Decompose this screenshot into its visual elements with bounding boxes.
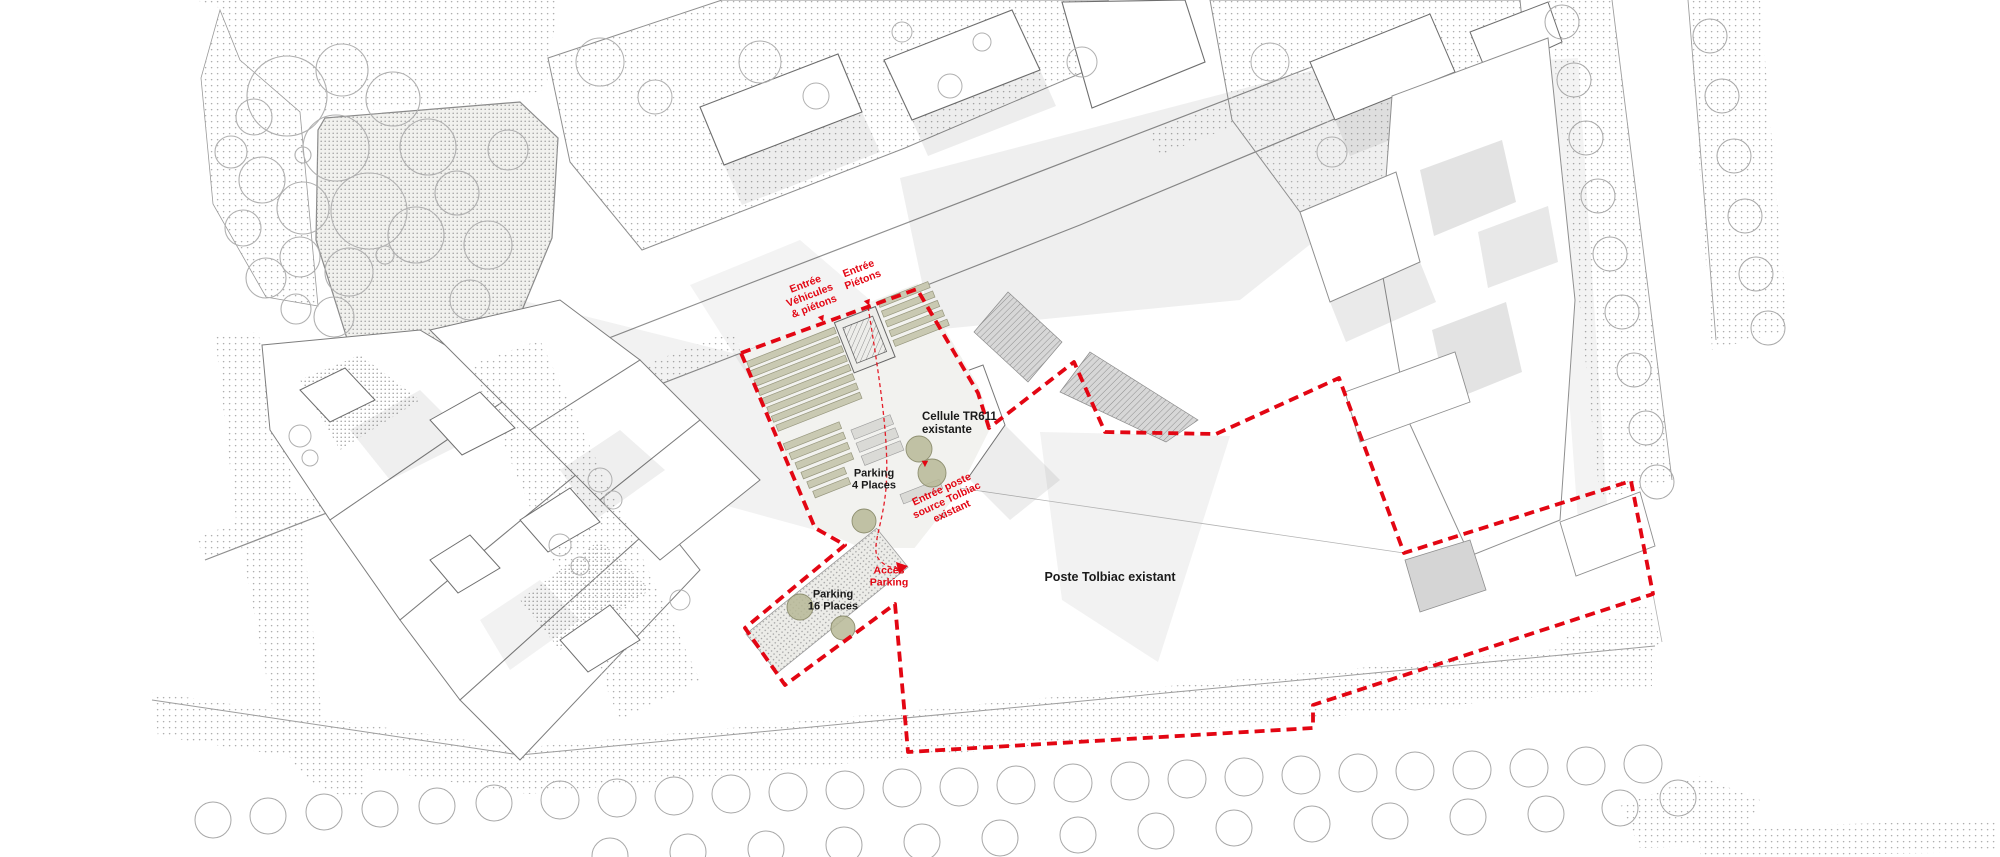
site-plan-svg xyxy=(0,0,2000,857)
site-plan: Entrée Véhicules & piétons ▼ Entrée Piét… xyxy=(0,0,2000,857)
